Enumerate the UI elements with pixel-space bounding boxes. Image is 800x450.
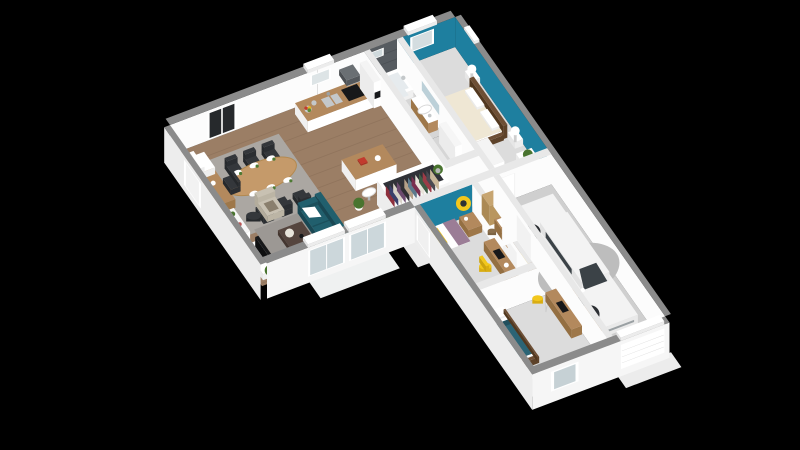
- bedroom3-yellow-stool: [532, 295, 543, 303]
- floorplan-scene: [0, 0, 800, 450]
- bedroom2-round-mirror: [456, 196, 471, 211]
- wardrobe-plant: [433, 164, 443, 174]
- floorplan-3d-render: [0, 0, 800, 450]
- wc-basket: [488, 229, 496, 236]
- side-stool: [246, 212, 261, 222]
